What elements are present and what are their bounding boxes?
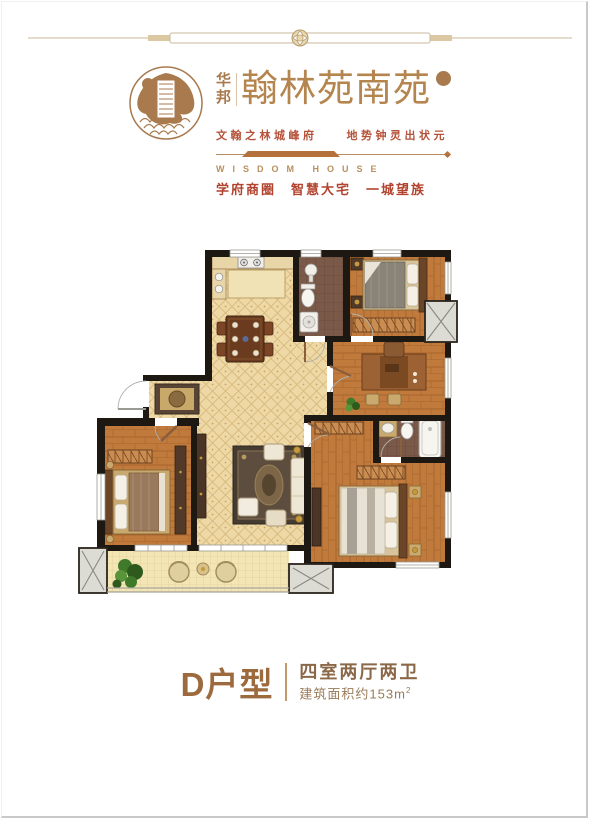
wardrobe xyxy=(357,466,405,479)
desk-chair xyxy=(384,342,404,357)
brand-header: 华 邦 翰林苑南苑 文翰之林城峰府 地势钟灵出状元 WISDOM HOUSE 学… xyxy=(126,60,451,198)
closet xyxy=(315,422,363,434)
company-name: 华 邦 xyxy=(216,73,237,106)
entry-rug xyxy=(155,384,199,414)
sink-icon xyxy=(215,273,223,281)
armchair xyxy=(264,444,284,460)
floor-plan xyxy=(63,248,458,616)
shaft-icon xyxy=(289,564,333,593)
elevator-shaft-icon xyxy=(425,301,457,342)
toilet-icon xyxy=(302,289,315,307)
armchair xyxy=(266,510,286,526)
hallway xyxy=(296,342,330,418)
logo-text-block: 华 邦 翰林苑南苑 文翰之林城峰府 地势钟灵出状元 WISDOM HOUSE 学… xyxy=(216,60,451,198)
tv-cabinet xyxy=(196,434,206,518)
tv-cabinet xyxy=(312,488,321,546)
unit-details: 四室两厅两卫 建筑面积约153m2 xyxy=(299,662,419,702)
company-char: 华 xyxy=(216,73,231,89)
wardrobe xyxy=(353,318,415,332)
slogan-divider xyxy=(216,150,448,158)
english-slogan: WISDOM HOUSE xyxy=(216,164,451,174)
unit-info: D户型 四室两厅两卫 建筑面积约153m2 xyxy=(0,658,600,706)
round-brand-seal-icon xyxy=(436,71,451,86)
toilet-icon xyxy=(401,423,413,439)
flyer-page: 华 邦 翰林苑南苑 文翰之林城峰府 地势钟灵出状元 WISDOM HOUSE 学… xyxy=(0,0,600,828)
company-char: 邦 xyxy=(216,90,231,106)
project-name: 翰林苑南苑 xyxy=(241,67,431,111)
layout-label: 四室两厅两卫 xyxy=(299,662,419,682)
dresser xyxy=(175,446,186,534)
primary-slogan: 文翰之林城峰府 地势钟灵出状元 xyxy=(216,127,451,143)
secondary-slogan: 学府商圈 智慧大宅 一城望族 xyxy=(216,179,451,198)
shaft-icon xyxy=(79,548,107,593)
area-label: 建筑面积约153m2 xyxy=(299,682,419,702)
lounge-chair xyxy=(238,498,258,516)
brand-emblem-icon xyxy=(126,60,206,146)
flower-medallion-divider-icon xyxy=(20,28,580,48)
logo-title-row: 华 邦 翰林苑南苑 xyxy=(216,60,451,118)
kitchen xyxy=(212,256,294,299)
basin-icon xyxy=(305,264,317,276)
unit-label: D户型 xyxy=(181,658,274,706)
wardrobe xyxy=(108,450,152,463)
footer-divider xyxy=(285,663,287,701)
